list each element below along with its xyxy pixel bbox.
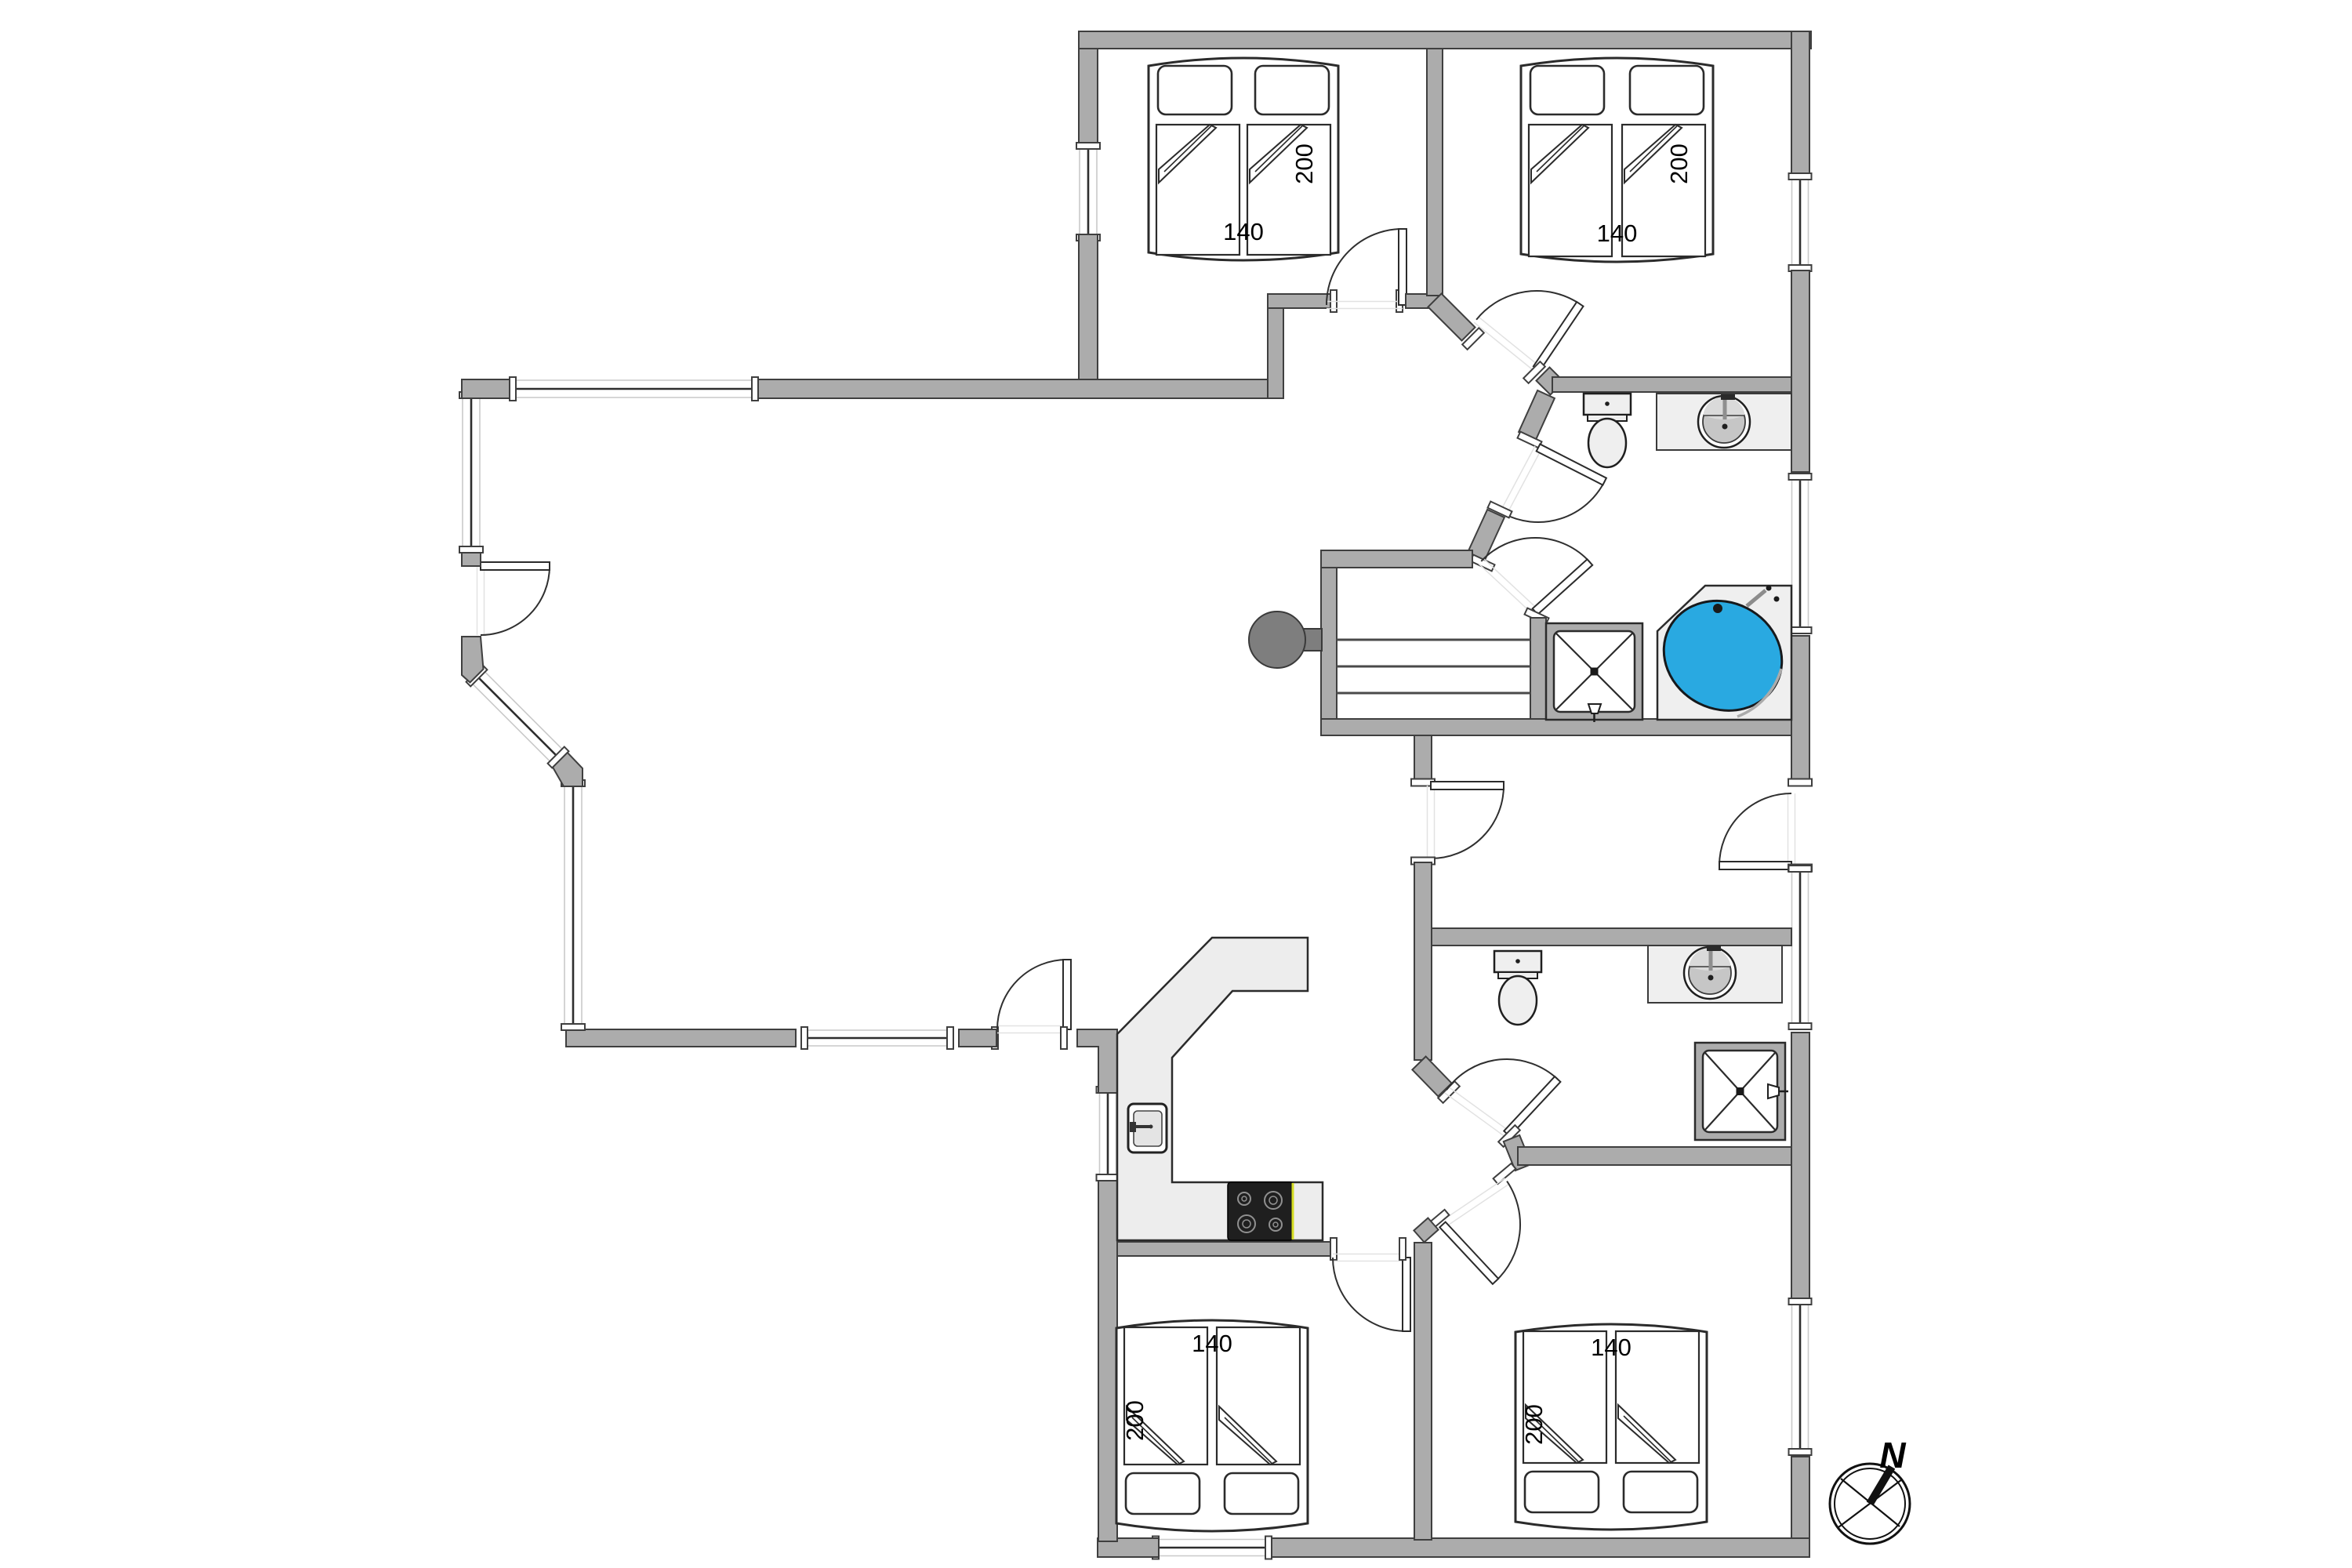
svg-text:140: 140 [1597,220,1638,247]
svg-text:140: 140 [1223,218,1264,245]
svg-text:200: 200 [1665,143,1693,184]
svg-text:140: 140 [1192,1330,1232,1357]
svg-text:200: 200 [1121,1400,1149,1441]
svg-text:N: N [1879,1435,1906,1475]
svg-text:200: 200 [1520,1404,1548,1445]
svg-text:200: 200 [1290,143,1318,184]
svg-text:140: 140 [1591,1334,1632,1361]
